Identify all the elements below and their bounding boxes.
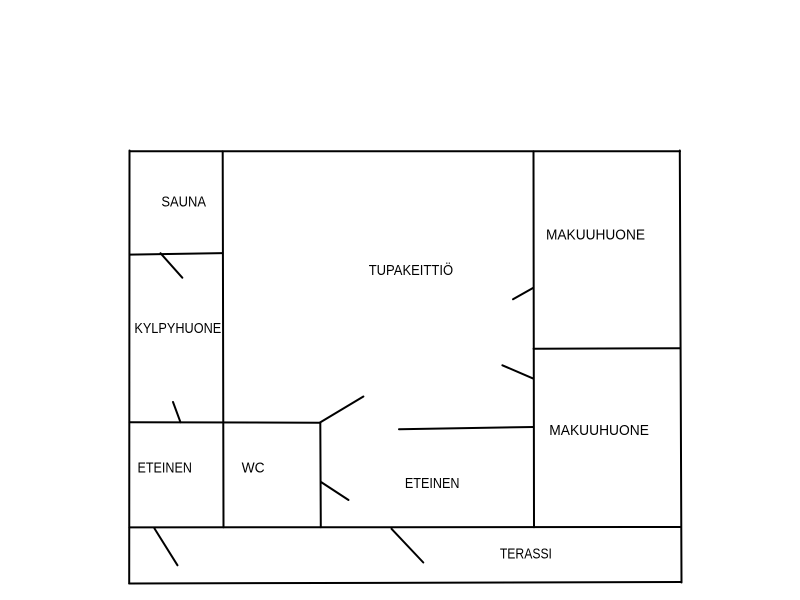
svg-text:ETEINEN: ETEINEN	[138, 461, 192, 477]
svg-text:WC: WC	[242, 461, 265, 477]
svg-text:MAKUUHUONE: MAKUUHUONE	[549, 423, 649, 439]
svg-text:ETEINEN: ETEINEN	[405, 476, 460, 492]
svg-text:SAUNA: SAUNA	[161, 194, 206, 210]
svg-text:TERASSI: TERASSI	[500, 547, 552, 563]
svg-text:TUPAKEITTIÖ: TUPAKEITTIÖ	[369, 261, 453, 279]
svg-text:MAKUUHUONE: MAKUUHUONE	[546, 227, 645, 243]
svg-text:KYLPYHUONE: KYLPYHUONE	[134, 321, 221, 337]
